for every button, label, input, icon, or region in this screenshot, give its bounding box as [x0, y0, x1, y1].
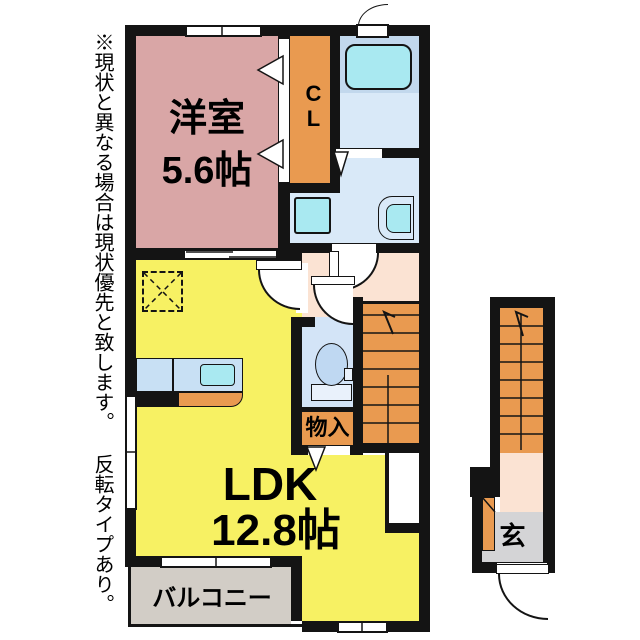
wall-void-bottom [385, 523, 419, 533]
wall-right [419, 25, 430, 632]
ldk-size: 12.8帖 [170, 508, 382, 554]
storage-door-opening [308, 446, 350, 455]
entrance-label: 玄 [482, 523, 543, 550]
stairs-2f-floor [363, 303, 419, 443]
western-room-label: 洋室 [136, 100, 278, 140]
wall-stairs-left [353, 297, 363, 455]
kitchen-base-cabinet-icon [178, 392, 243, 407]
landing-floor [500, 453, 543, 512]
wall-stairs-top-line [363, 301, 419, 304]
window-bottom-right [337, 621, 388, 633]
wall-kitchen-stub [136, 392, 178, 407]
balcony-rail-bottom [128, 624, 302, 627]
ldk-door-leaf [256, 260, 302, 270]
closet-label: CL [297, 74, 325, 138]
washer-pan-icon [294, 197, 331, 234]
toilet-handle-icon [344, 368, 353, 381]
ldk-label: LDK [170, 460, 370, 508]
sliding-door-western-ldk [183, 249, 278, 260]
toilet-door-leaf [311, 276, 355, 285]
wall-closet-bottom [278, 183, 340, 193]
bathtub-icon [345, 44, 412, 90]
balcony-label: バルコニー [136, 586, 288, 611]
wall-1f-bump [470, 467, 500, 497]
window-bath-swing-arc [358, 4, 388, 26]
window-bath-top [356, 24, 389, 38]
bath-floor-lower [340, 93, 419, 148]
wall-void-left [385, 453, 389, 523]
wall-stairs-bottom [353, 443, 419, 453]
entrance-door-leaf [496, 564, 549, 574]
entrance-door-swing [498, 574, 548, 620]
stairs-1f-floor [500, 308, 543, 453]
western-room-floor [136, 36, 278, 248]
wall-toilet-bottom-line [302, 407, 353, 412]
wall-1f-right [543, 297, 555, 573]
floorplan-canvas: ※現状と異なる場合は現状優先と致します。 反転タイプあり。 洋室 5.6帖 CL… [0, 0, 640, 640]
balcony-rail-left [128, 567, 131, 627]
wall-balcony-right [272, 556, 302, 567]
bath-door-opening [336, 149, 382, 158]
ldk-floor-c [385, 533, 419, 621]
wall-closet-right [330, 25, 340, 193]
stair-void [389, 453, 415, 523]
wall-1f-left-upper [490, 297, 500, 470]
window-ldk-left [125, 395, 137, 510]
window-western-top [185, 25, 262, 37]
toilet-tank-icon [311, 384, 352, 401]
wall-toilet-left [291, 317, 302, 455]
window-balcony [160, 556, 272, 568]
kitchen-sink-icon [200, 364, 235, 386]
wall-balcony-side [291, 567, 302, 621]
storage-label: 物入 [302, 416, 353, 439]
western-room-size: 5.6帖 [136, 152, 278, 192]
wall-toilet-top [302, 317, 315, 327]
wall-balcony-left [125, 556, 160, 567]
vanity-basin-icon [386, 204, 411, 233]
ceiling-fixture-dashed-box [142, 271, 183, 312]
closet-doors [278, 38, 290, 183]
disclaimer-note: ※現状と異なる場合は現状優先と致します。 反転タイプあり。 [82, 32, 112, 627]
kitchen-counter-divider [172, 358, 174, 392]
